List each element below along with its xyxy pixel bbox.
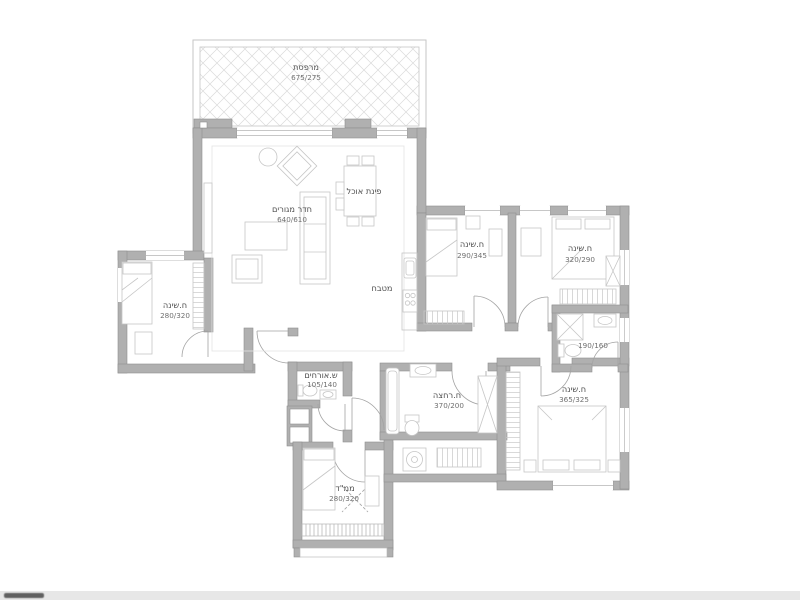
wall: [384, 474, 506, 482]
bottom-bar: [0, 591, 800, 600]
pillow: [123, 263, 151, 274]
window-living-right: [377, 128, 407, 138]
balcony-label: מרפסת: [293, 62, 319, 72]
pillow: [304, 449, 334, 460]
shower-room-fixtures: [557, 314, 616, 357]
nightstand: [466, 216, 480, 229]
window-bedroom-left-top: [146, 251, 184, 260]
desk: [489, 229, 502, 256]
wall: [293, 442, 302, 548]
chair: [347, 156, 359, 165]
pillow: [574, 460, 600, 470]
wall: [550, 206, 568, 215]
wall: [552, 364, 592, 372]
side-panel: [606, 256, 620, 286]
wall: [343, 362, 352, 396]
bedroom-left-label: ח.שינה: [163, 300, 187, 310]
wall: [552, 305, 628, 313]
wardrobe: [506, 372, 520, 470]
chair: [336, 182, 344, 194]
door-bedroom-right: [518, 297, 548, 327]
coffee-table: [245, 222, 287, 250]
safe-room-dims: 280/320: [329, 494, 359, 503]
master-bedroom-dims: 365/325: [559, 395, 589, 404]
chair: [362, 156, 374, 165]
pillow: [585, 219, 610, 229]
wall: [387, 548, 393, 557]
shower-panel: [478, 376, 497, 433]
wardrobe: [424, 311, 464, 324]
chair: [362, 217, 374, 226]
niche: [290, 409, 309, 424]
wardrobe: [193, 263, 204, 329]
toilet-tank: [298, 385, 303, 396]
balcony-tile-hatch: [200, 47, 419, 126]
laundry-area: [403, 448, 481, 471]
bathroom-dims: 370/200: [434, 401, 464, 410]
bedroom-mid-dims: 290/345: [457, 251, 487, 260]
bottom-bar-text-smudge: [4, 593, 44, 598]
wall: [345, 119, 371, 128]
cabinet: [365, 476, 379, 506]
wall: [194, 119, 232, 128]
door-bedroom-mid: [474, 296, 505, 327]
wall: [384, 440, 393, 550]
window-shower-side: [620, 318, 629, 342]
dresser: [135, 332, 152, 354]
wall: [193, 128, 202, 258]
guest-wc-label: ש.אורחים: [304, 370, 338, 380]
wall: [497, 363, 506, 483]
bedroom-left-dims: 280/320: [160, 311, 190, 320]
window-living-left: [237, 128, 332, 138]
wall: [343, 430, 352, 442]
sink: [594, 314, 616, 327]
wall: [497, 481, 553, 490]
pillow: [556, 219, 581, 229]
stove: [403, 290, 417, 312]
door-corridor: [352, 398, 384, 430]
bathroom-label: ח.רחצה: [433, 390, 461, 400]
window-safe-room: [302, 524, 384, 536]
niche: [290, 427, 309, 443]
window-master-bottom: [553, 481, 613, 490]
door-living-hall: [257, 331, 289, 363]
master-bedroom-label: ח.שינה: [562, 384, 586, 394]
nightstand: [524, 460, 536, 472]
window-bedroom-right-1: [520, 206, 550, 215]
shelf-unit: [437, 448, 481, 467]
guest-wc-dims: 105/140: [307, 380, 337, 389]
shower-room-dims: 190/160: [578, 341, 608, 350]
living-label: חדר מגורים: [272, 204, 312, 214]
chair: [347, 217, 359, 226]
wall: [244, 328, 253, 371]
safe-room-label: ממ"ד: [335, 483, 354, 493]
desk: [521, 228, 541, 256]
living-dims: 640/610: [277, 215, 307, 224]
window-master-side: [620, 408, 629, 452]
floor-plan-drawing: מרפסת 675/275 חדר מגורים 640/610 פינת או…: [0, 0, 800, 600]
wall: [332, 128, 377, 138]
safe-room-ledge: [300, 548, 387, 557]
wall: [288, 328, 298, 336]
dining-label: פינת אוכל: [347, 186, 382, 196]
bedroom-mid-furniture: [424, 216, 502, 324]
wall: [508, 213, 516, 323]
window-bedroom-right-2: [568, 206, 606, 215]
door-guest-wc: [318, 404, 345, 431]
sink: [410, 364, 436, 377]
wardrobe: [560, 289, 616, 304]
armchair-rotated: [277, 146, 317, 186]
wall: [293, 540, 393, 548]
plant: [259, 148, 277, 166]
door-bedroom-left: [182, 331, 208, 357]
wall: [294, 548, 300, 557]
bedroom-mid-label: ח.שינה: [460, 239, 484, 249]
wall: [497, 358, 540, 366]
bedroom-right-label: ח.שינה: [568, 243, 592, 253]
wall: [618, 364, 628, 372]
pillow: [543, 460, 569, 470]
tv-unit: [204, 183, 212, 253]
balcony-dims: 675/275: [291, 73, 321, 82]
nightstand: [608, 460, 620, 472]
toilet-tank: [558, 344, 564, 357]
wall: [505, 323, 518, 331]
bedroom-right-dims: 320/290: [565, 255, 595, 264]
window-bedroom-mid: [465, 206, 500, 215]
kitchen-label: מטבח: [372, 283, 393, 293]
wall: [417, 128, 426, 213]
chair: [336, 198, 344, 210]
toilet-bowl: [405, 421, 419, 436]
balcony-column: [200, 122, 207, 128]
floor-plan-page: מרפסת 675/275 חדר מגורים 640/610 פינת או…: [0, 0, 800, 600]
wall: [118, 364, 255, 373]
window-bedroom-right-side: [620, 250, 629, 285]
pillow: [427, 219, 456, 230]
